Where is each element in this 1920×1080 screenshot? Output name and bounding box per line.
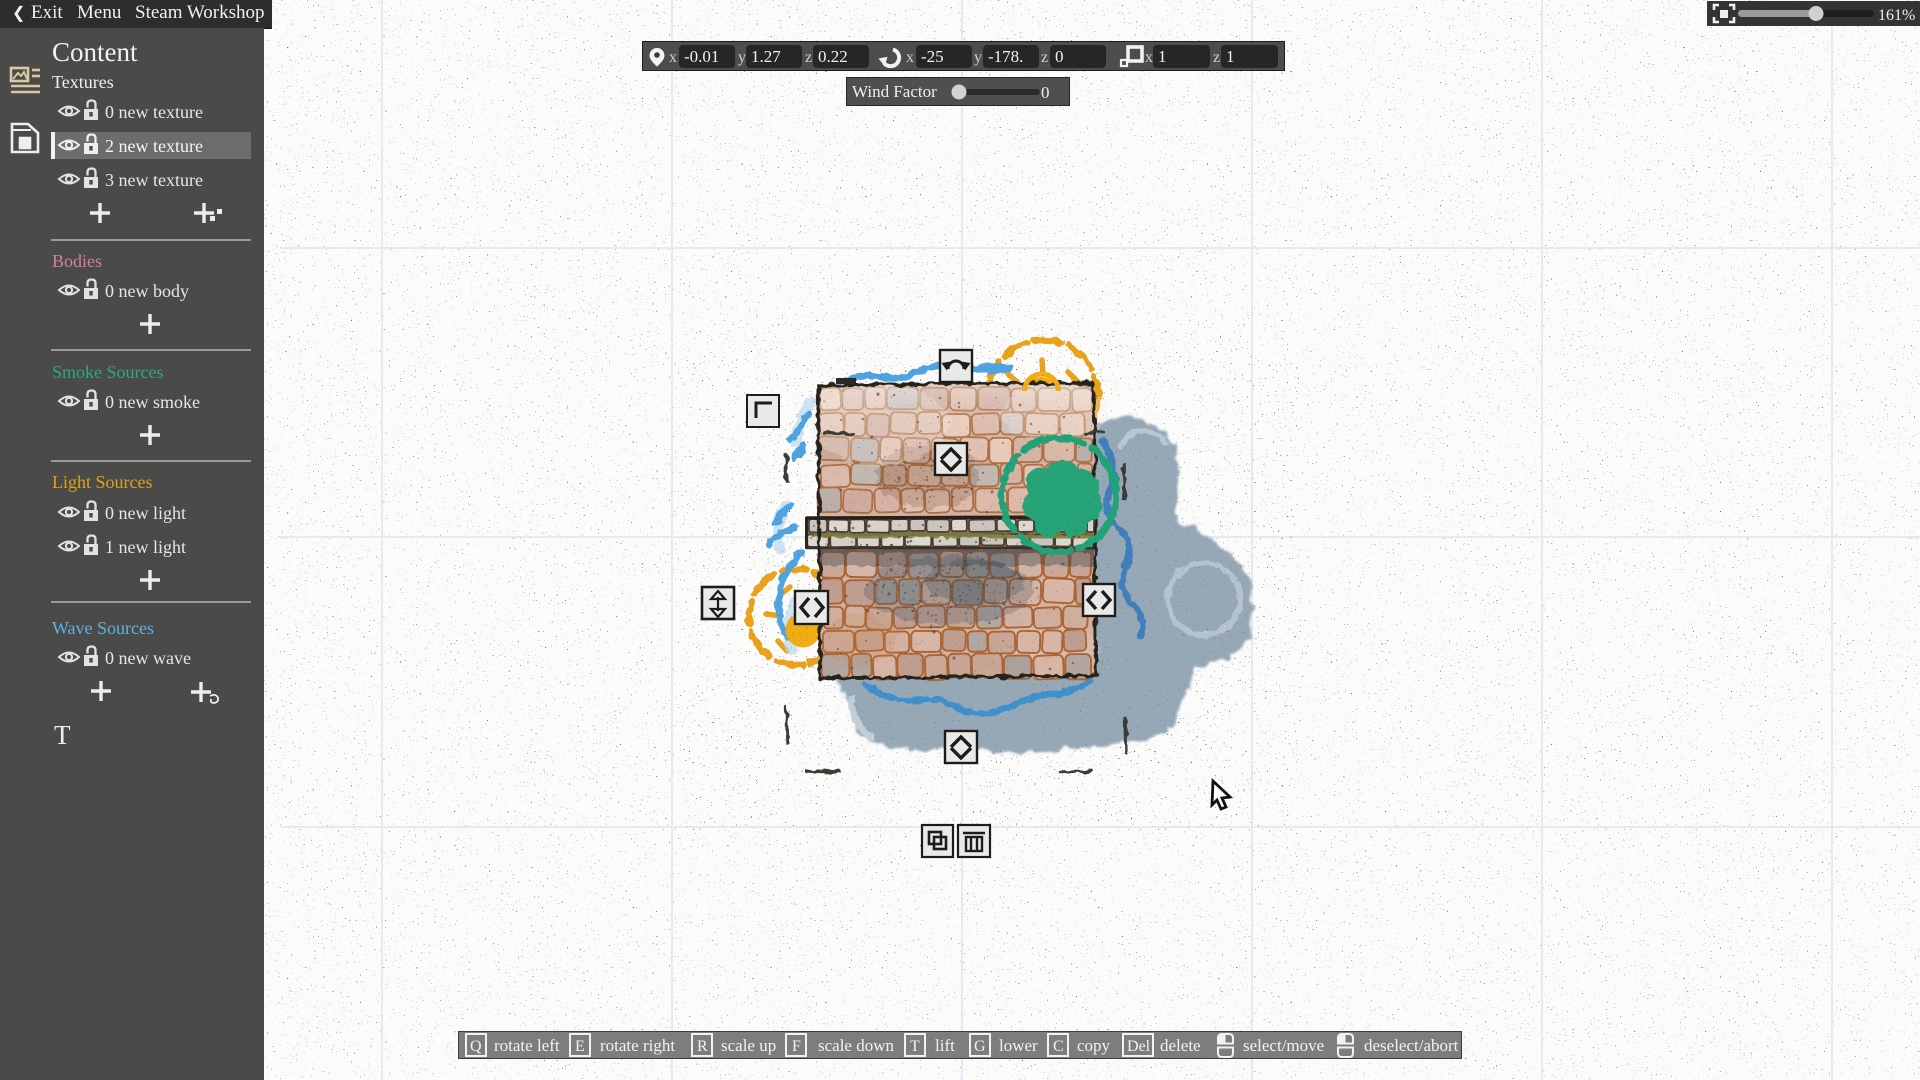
svg-text:1: 1	[1226, 47, 1235, 66]
svg-text:E: E	[575, 1038, 585, 1055]
svg-text:0 new light: 0 new light	[105, 503, 186, 523]
svg-text:z: z	[805, 49, 812, 66]
svg-text:x: x	[906, 49, 914, 66]
svg-text:Smoke Sources: Smoke Sources	[52, 362, 164, 382]
svg-text:x: x	[669, 49, 677, 66]
svg-text:C: C	[1053, 1038, 1064, 1055]
svg-text:Textures: Textures	[52, 72, 114, 92]
svg-text:0 new body: 0 new body	[105, 281, 189, 301]
svg-text:Light Sources: Light Sources	[52, 472, 153, 492]
svg-text:copy: copy	[1077, 1036, 1111, 1055]
svg-text:0 new smoke: 0 new smoke	[105, 392, 200, 412]
svg-text:2 new texture: 2 new texture	[105, 136, 203, 156]
svg-text:lift: lift	[935, 1036, 955, 1055]
svg-text:Q: Q	[470, 1038, 482, 1055]
svg-text:0 new texture: 0 new texture	[105, 102, 203, 122]
svg-text:scale up: scale up	[721, 1036, 776, 1055]
svg-text:lower: lower	[999, 1036, 1038, 1055]
svg-text:-0.01: -0.01	[684, 47, 719, 66]
svg-text:rotate left: rotate left	[494, 1036, 560, 1055]
svg-text:G: G	[974, 1038, 986, 1055]
svg-text:1: 1	[1158, 47, 1167, 66]
svg-text:rotate right: rotate right	[600, 1036, 675, 1055]
svg-text:select/move: select/move	[1243, 1036, 1324, 1055]
svg-text:0: 0	[1041, 83, 1050, 102]
svg-text:z: z	[1213, 49, 1220, 66]
svg-text:delete: delete	[1160, 1036, 1201, 1055]
svg-text:Bodies: Bodies	[52, 251, 102, 271]
svg-text:T: T	[910, 1038, 920, 1055]
svg-text:-178.: -178.	[988, 47, 1023, 66]
svg-text:1.27: 1.27	[751, 47, 781, 66]
svg-text:Content: Content	[52, 37, 138, 67]
svg-text:Del: Del	[1127, 1038, 1151, 1055]
svg-text:deselect/abort: deselect/abort	[1364, 1036, 1459, 1055]
svg-text:R: R	[697, 1038, 708, 1055]
svg-text:x: x	[1145, 49, 1153, 66]
svg-text:3 new texture: 3 new texture	[105, 170, 203, 190]
svg-text:0.22: 0.22	[818, 47, 848, 66]
svg-text:z: z	[1041, 49, 1048, 66]
svg-text:T: T	[54, 720, 71, 750]
svg-text:Wave Sources: Wave Sources	[52, 618, 154, 638]
svg-text:scale down: scale down	[818, 1036, 895, 1055]
svg-text:-25: -25	[921, 47, 944, 66]
svg-text:161%: 161%	[1878, 7, 1915, 24]
svg-text:F: F	[792, 1038, 801, 1055]
svg-text:0 new wave: 0 new wave	[105, 648, 191, 668]
svg-text:1 new light: 1 new light	[105, 537, 186, 557]
svg-text:Wind Factor: Wind Factor	[852, 82, 937, 101]
svg-text:y: y	[974, 49, 982, 66]
svg-text:y: y	[738, 49, 746, 66]
svg-text:0: 0	[1055, 47, 1064, 66]
